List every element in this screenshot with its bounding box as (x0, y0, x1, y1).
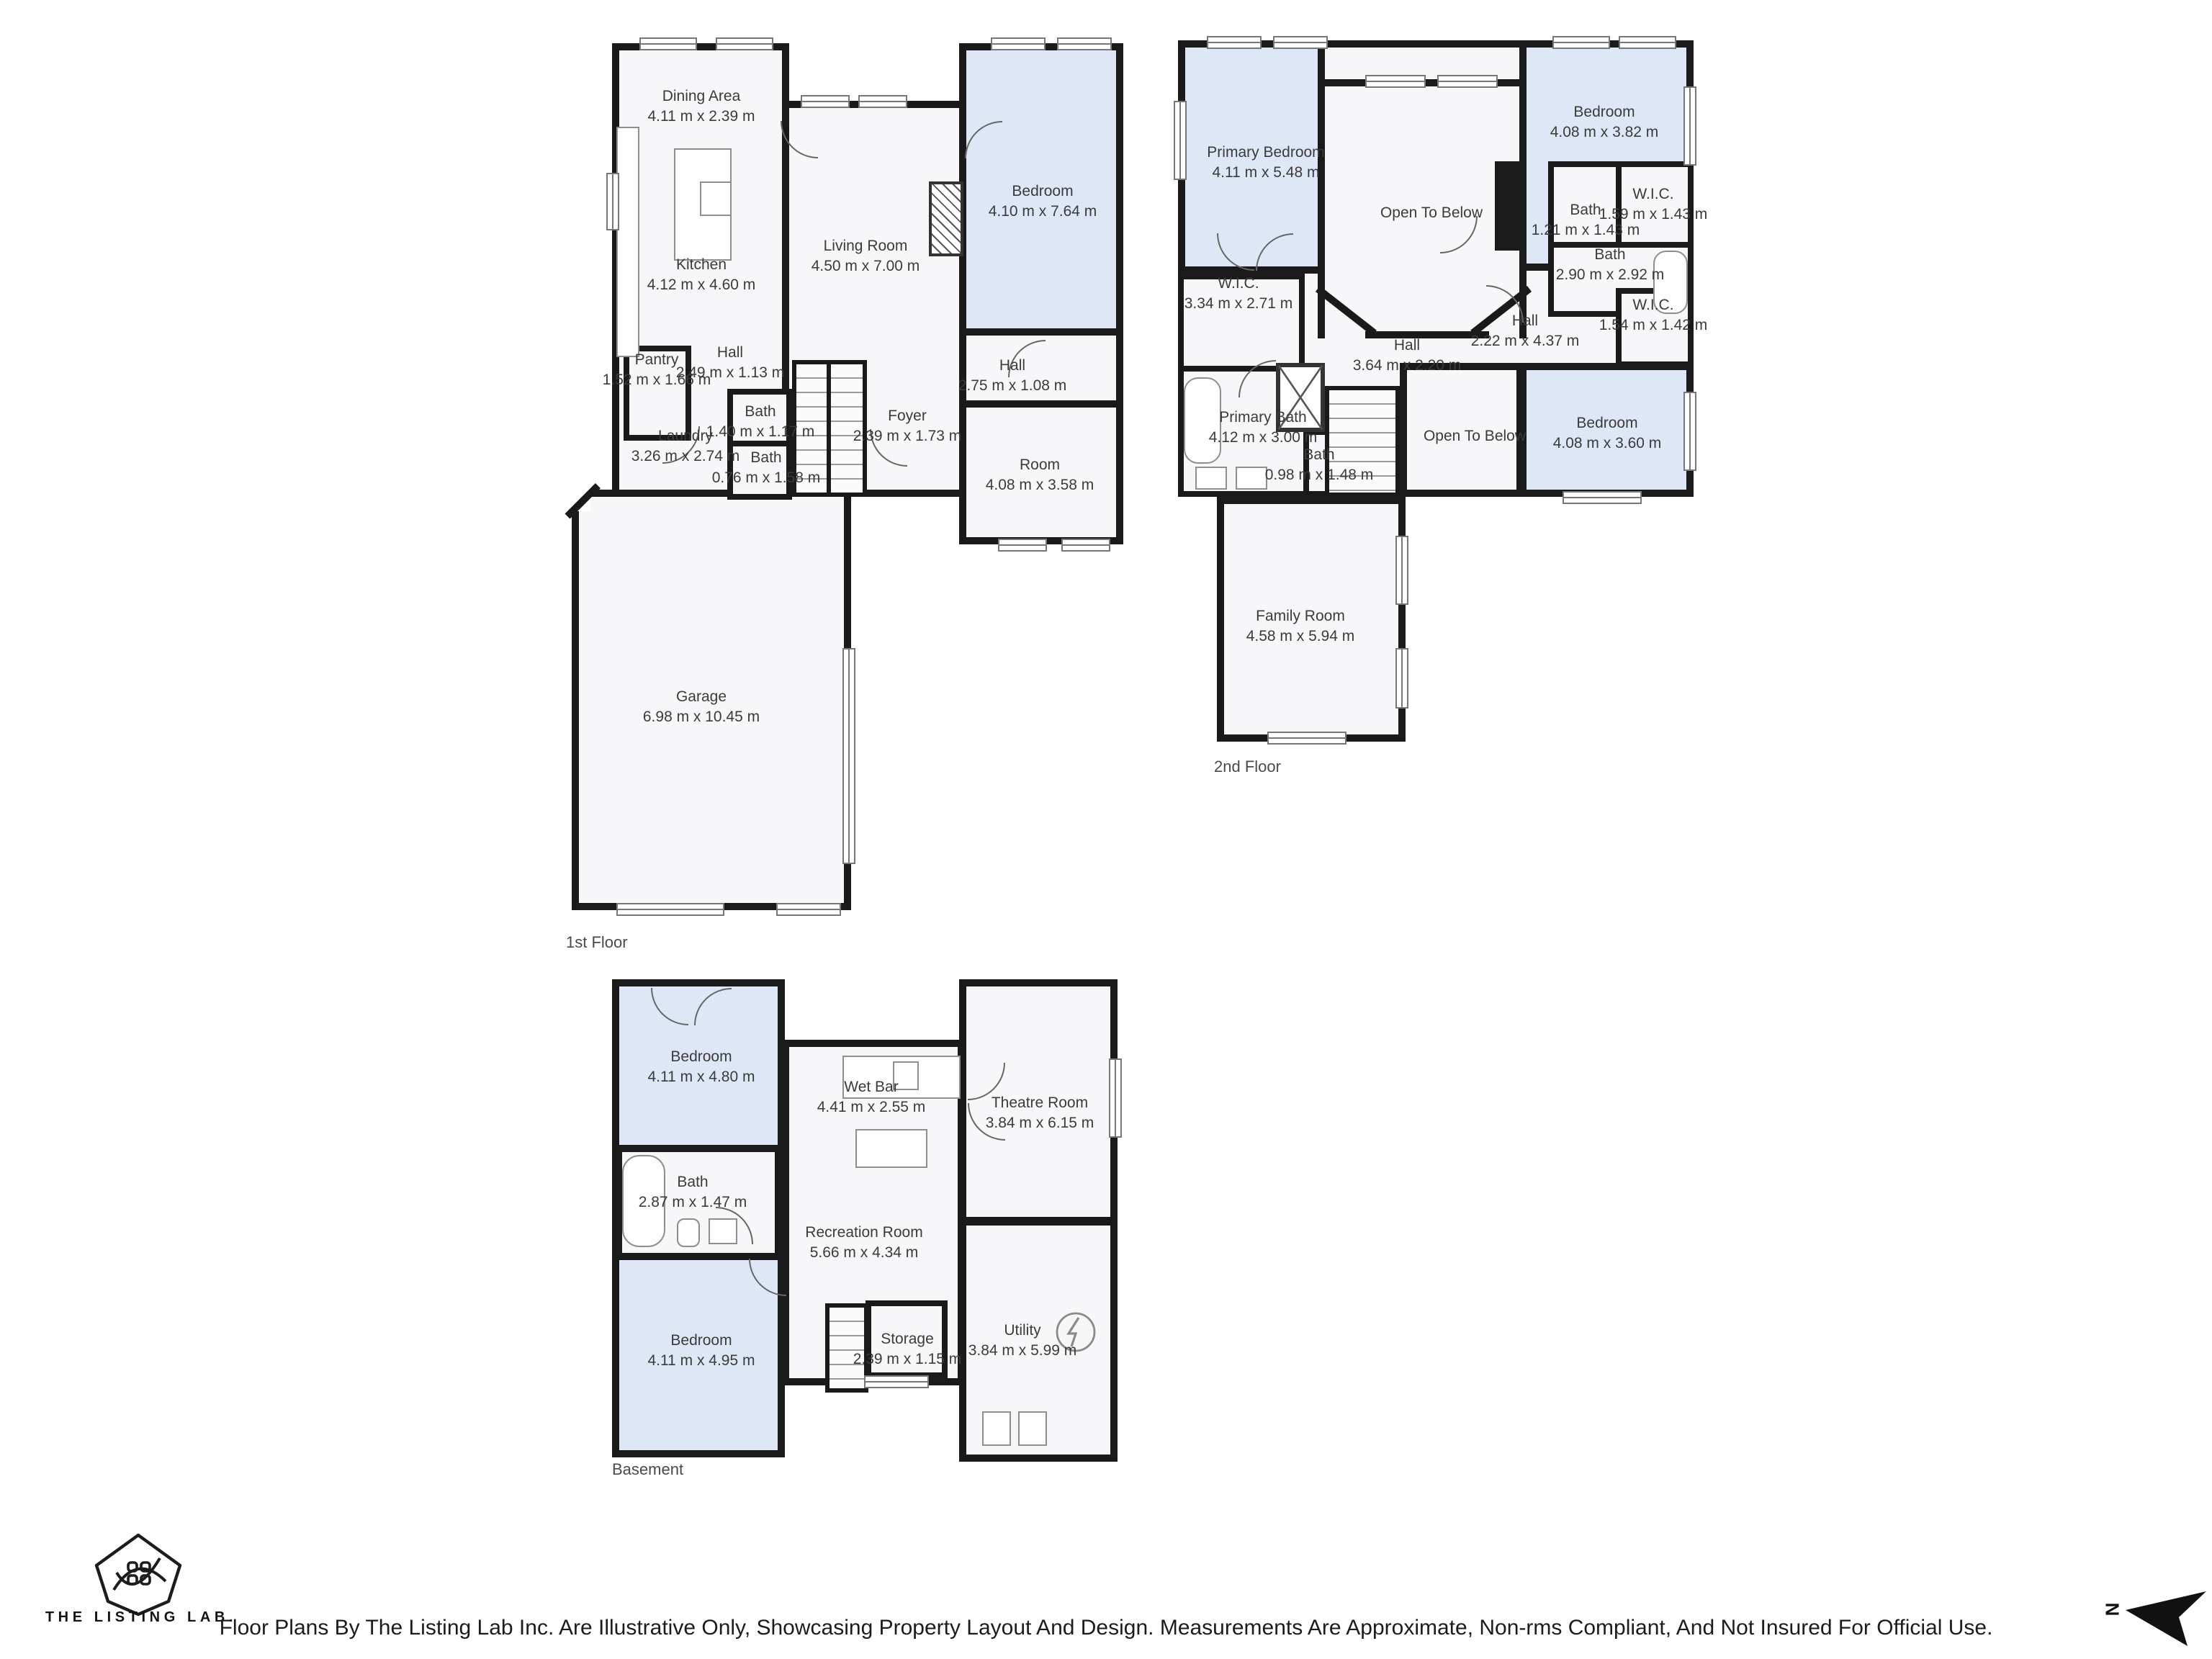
f2-chimney (1495, 161, 1519, 251)
room-label: Foyer2.39 m x 1.73 m (853, 406, 962, 446)
floor-label-1st: 1st Floor (566, 935, 628, 952)
window (1057, 37, 1112, 50)
room-label: Bedroom4.10 m x 7.64 m (989, 181, 1097, 222)
room-label: Open To Below (1380, 203, 1483, 223)
listing-lab-logo-icon (88, 1529, 189, 1619)
room-label: Kitchen4.12 m x 4.60 m (647, 255, 756, 295)
room-label: Living Room4.50 m x 7.00 m (811, 236, 920, 276)
room-label: Utility3.84 m x 5.99 m (968, 1321, 1077, 1361)
window (1395, 536, 1408, 605)
window (616, 903, 724, 916)
window (1267, 732, 1346, 745)
wet-bar-island (855, 1129, 927, 1168)
room-label: Bedroom4.08 m x 3.82 m (1550, 102, 1659, 143)
f1-stairs-divider (827, 360, 831, 497)
room-label: Hall3.64 m x 2.20 m (1353, 336, 1462, 376)
window (1552, 36, 1610, 49)
window (639, 37, 697, 50)
window (1365, 75, 1426, 88)
primary-bath-sink (1236, 467, 1267, 490)
window (1174, 101, 1187, 180)
window (776, 903, 841, 916)
floor-label-basement: Basement (612, 1462, 683, 1479)
window (864, 1375, 929, 1388)
room-label: Bedroom4.11 m x 4.95 m (647, 1331, 755, 1371)
window (1683, 392, 1696, 471)
north-arrow-icon (2120, 1587, 2212, 1650)
window (998, 539, 1047, 552)
window (801, 95, 850, 108)
window (991, 37, 1046, 50)
room-label: Bath2.90 m x 2.92 m (1556, 245, 1665, 285)
room-label: W.I.C.1.59 m x 1.43 m (1599, 184, 1708, 225)
window (842, 648, 855, 864)
room-label: Family Room4.58 m x 5.94 m (1246, 606, 1355, 647)
room-label: Bath0.98 m x 1.48 m (1265, 445, 1374, 485)
room-label: Bedroom4.11 m x 4.80 m (647, 1047, 755, 1087)
room-label: Dining Area4.11 m x 2.39 m (647, 86, 755, 127)
room-label: Recreation Room5.66 m x 4.34 m (805, 1223, 922, 1263)
window (606, 173, 619, 230)
window (1061, 539, 1110, 552)
room-label: Storage2.39 m x 1.15 m (853, 1329, 962, 1370)
room-label: Hall2.49 m x 1.13 m (676, 343, 785, 383)
room-label: Hall2.75 m x 1.08 m (958, 356, 1067, 396)
kitchen-counter (616, 127, 639, 357)
room-label: W.I.C.1.54 m x 1.42 m (1599, 295, 1708, 336)
window (1563, 491, 1642, 504)
window (716, 37, 773, 50)
room-label: Room4.08 m x 3.58 m (986, 455, 1094, 495)
utility-equipment-box (982, 1411, 1011, 1446)
f1-fireplace (929, 181, 963, 256)
room-label: Bath2.87 m x 1.47 m (639, 1172, 747, 1213)
utility-equipment-box (1018, 1411, 1047, 1446)
floor-label-2nd: 2nd Floor (1214, 759, 1281, 776)
room-label: Garage6.98 m x 10.45 m (643, 687, 760, 727)
disclaimer-text: Floor Plans By The Listing Lab Inc. Are … (0, 1616, 2212, 1640)
room-label: Primary Bath4.12 m x 3.00 m (1209, 408, 1318, 448)
kitchen-stove (700, 181, 732, 216)
window (1619, 36, 1676, 49)
window (1395, 648, 1408, 709)
primary-bath-sink (1195, 467, 1227, 490)
window (1437, 75, 1498, 88)
room-label: Open To Below (1424, 426, 1526, 446)
room-label: Wet Bar4.41 m x 2.55 m (817, 1077, 926, 1118)
window (1683, 86, 1696, 166)
window (858, 95, 907, 108)
room-label: Bedroom4.08 m x 3.60 m (1553, 413, 1662, 454)
room-label: Theatre Room3.84 m x 6.15 m (986, 1093, 1094, 1133)
room-label: Primary Bedroom4.11 m x 5.48 m (1207, 143, 1324, 183)
room-label: Bath0.76 m x 1.58 m (712, 448, 821, 488)
floor-plan-sheet: Dining Area4.11 m x 2.39 m Kitchen4.12 m… (0, 0, 2212, 1659)
window (1273, 36, 1328, 49)
window (1109, 1058, 1122, 1138)
bath-toilet (677, 1218, 700, 1247)
window (1207, 36, 1262, 49)
room-label: Hall2.22 m x 4.37 m (1471, 311, 1580, 351)
room-label: W.I.C.3.34 m x 2.71 m (1184, 274, 1293, 314)
